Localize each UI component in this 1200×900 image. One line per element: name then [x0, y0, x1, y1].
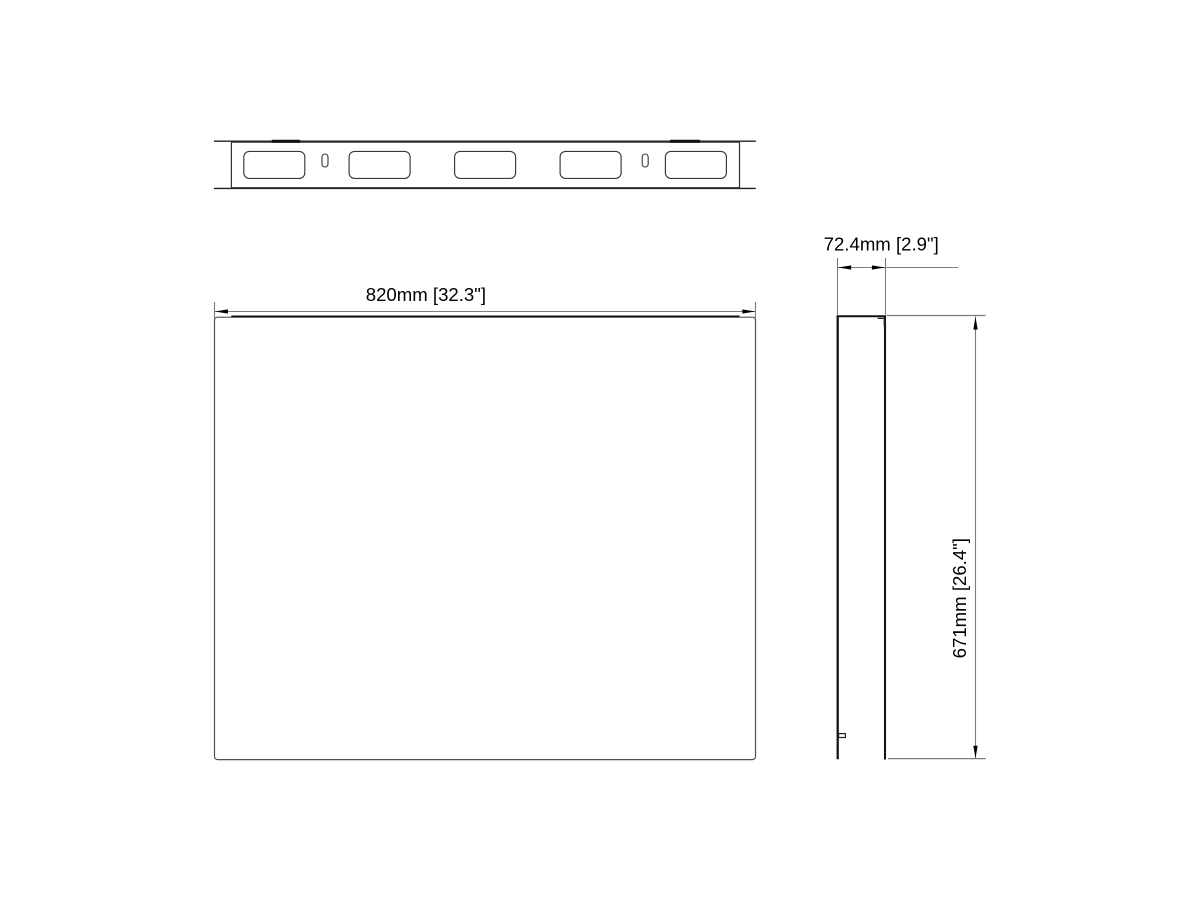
svg-text:72.4mm [2.9"]: 72.4mm [2.9"]	[824, 234, 939, 255]
svg-text:671mm [26.4"]: 671mm [26.4"]	[949, 538, 970, 658]
svg-text:820mm [32.3"]: 820mm [32.3"]	[366, 284, 486, 305]
